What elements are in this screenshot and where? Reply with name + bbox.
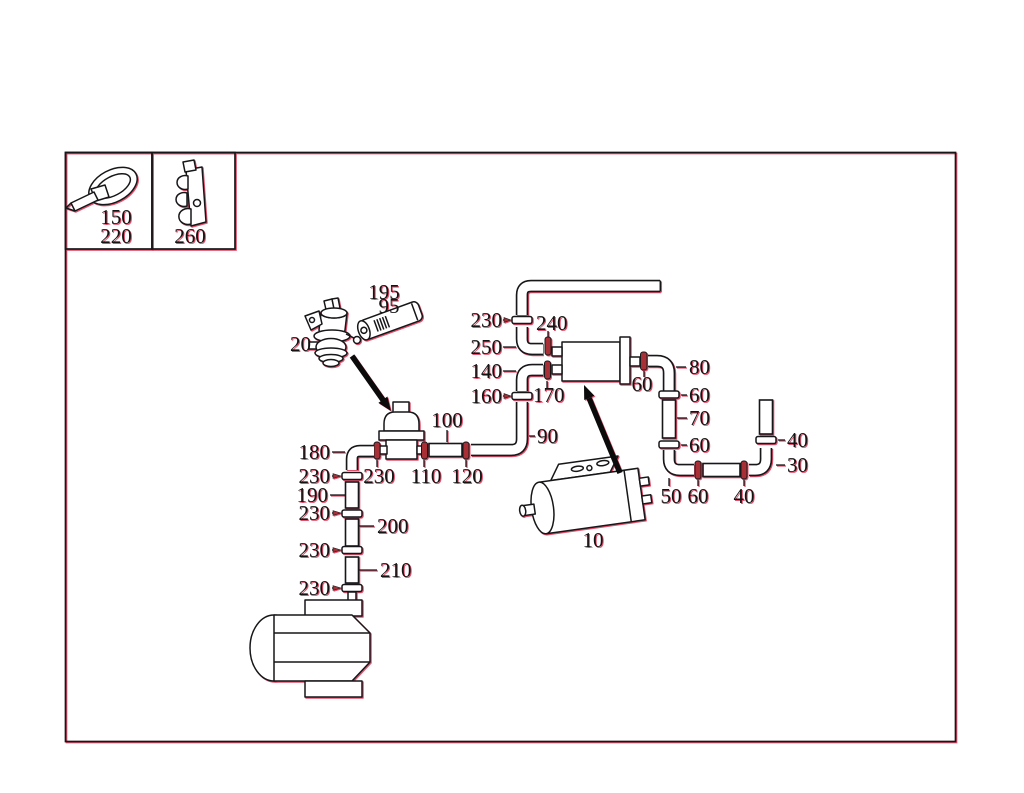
clamp-230-b [342, 510, 362, 517]
callout-170[interactable]: 170 [533, 383, 565, 407]
callout-250[interactable]: 250 [471, 335, 503, 359]
elbow-90 [471, 402, 522, 450]
valve-stub-ball [354, 337, 361, 344]
connector-110 [422, 442, 428, 459]
connector-120 [463, 442, 469, 459]
callout-10[interactable]: 10 [583, 528, 604, 552]
callout-100[interactable]: 100 [431, 408, 463, 432]
callout-95[interactable]: 95 [379, 294, 400, 318]
clamp-230-a [342, 473, 362, 480]
callout-50[interactable]: 50 [661, 484, 682, 508]
callout-180[interactable]: 180 [299, 440, 331, 464]
canister-drawing [514, 452, 654, 537]
connector-60 [641, 352, 648, 370]
pressure-regulator [379, 402, 424, 459]
callout-210[interactable]: 210 [380, 558, 412, 582]
clamp-230-d [342, 585, 362, 592]
fuel-pump-drawing [250, 592, 370, 697]
callout-230-d[interactable]: 230 [299, 576, 331, 600]
clip-hole [194, 200, 201, 207]
clip-finger-1 [177, 176, 188, 190]
regulator-body [386, 440, 417, 459]
reservoir-port-upper [552, 347, 562, 356]
canister-nipple-2 [642, 495, 652, 504]
callout-30[interactable]: 30 [787, 453, 808, 477]
canister-nipple-1 [639, 477, 649, 486]
hose-200 [346, 519, 359, 546]
callout-260[interactable]: 260 [174, 224, 206, 248]
reservoir-port-lower [552, 365, 562, 374]
valve-tip [323, 360, 339, 367]
clamp-160 [512, 393, 532, 400]
callout-70[interactable]: 70 [689, 406, 710, 430]
elbow-30 [749, 448, 766, 470]
valve-bracket-hole [310, 318, 315, 323]
clip-drawing [176, 160, 206, 226]
connector-170 [545, 361, 551, 379]
clamp-60-lower [659, 441, 679, 448]
callout-60-port[interactable]: 60 [632, 372, 653, 396]
callout-80[interactable]: 80 [689, 355, 710, 379]
return-pipe-top [522, 281, 660, 316]
connector-60-b [695, 461, 701, 479]
regulator-stub-left [380, 446, 387, 454]
callout-240[interactable]: 240 [536, 311, 568, 335]
clip-finger-3 [179, 208, 191, 224]
callout-110[interactable]: 110 [411, 464, 442, 488]
hose-70 [663, 400, 676, 438]
callout-200[interactable]: 200 [377, 514, 409, 538]
clamp-40 [756, 437, 776, 444]
reservoir-body [562, 342, 620, 381]
regulator-dome [384, 412, 419, 431]
regulator-plate [379, 431, 424, 440]
connector-40 [741, 461, 747, 479]
callout-120[interactable]: 120 [451, 464, 483, 488]
callout-230-mid[interactable]: 230 [363, 464, 395, 488]
connector-240 [545, 337, 551, 355]
cable-tie-tail [71, 192, 98, 211]
parts-diagram-page: 150 220 260 20 195 95 [0, 0, 1024, 793]
locator-arrow-valve [352, 356, 391, 411]
callout-40-clamp[interactable]: 40 [787, 428, 808, 452]
callout-60-low[interactable]: 60 [689, 433, 710, 457]
pump-bottom-plate [305, 681, 362, 697]
callout-20[interactable]: 20 [290, 332, 311, 356]
clip-tab [183, 160, 196, 172]
pump-top-plate [305, 600, 362, 616]
callout-230-b[interactable]: 230 [299, 501, 331, 525]
callout-60-up[interactable]: 60 [689, 383, 710, 407]
callout-90[interactable]: 90 [537, 424, 558, 448]
reservoir-port-right [630, 357, 640, 366]
hose-210 [346, 557, 359, 583]
connector-230-mid [374, 442, 380, 459]
clamp-60-upper [659, 391, 679, 398]
hose-100 [429, 444, 462, 457]
valve-cup-rim [321, 308, 347, 318]
callout-60-b[interactable]: 60 [688, 484, 709, 508]
hose-mid-right [703, 464, 740, 477]
callout-230-top[interactable]: 230 [471, 308, 503, 332]
diagram-canvas: 150 220 260 20 195 95 [0, 0, 1024, 793]
clamp-230-c [342, 547, 362, 554]
clamp-230-top [512, 317, 532, 324]
reservoir-end-cap [620, 337, 630, 384]
pump-body [274, 615, 370, 681]
inline-reservoir [552, 337, 640, 384]
callout-220[interactable]: 220 [100, 224, 132, 248]
callout-140[interactable]: 140 [471, 359, 503, 383]
callout-230-c[interactable]: 230 [299, 538, 331, 562]
hose-190 [346, 482, 359, 508]
clip-finger-2 [176, 193, 187, 207]
callout-40-b[interactable]: 40 [734, 484, 755, 508]
callout-160[interactable]: 160 [471, 384, 503, 408]
pipe-top-right [760, 400, 773, 434]
